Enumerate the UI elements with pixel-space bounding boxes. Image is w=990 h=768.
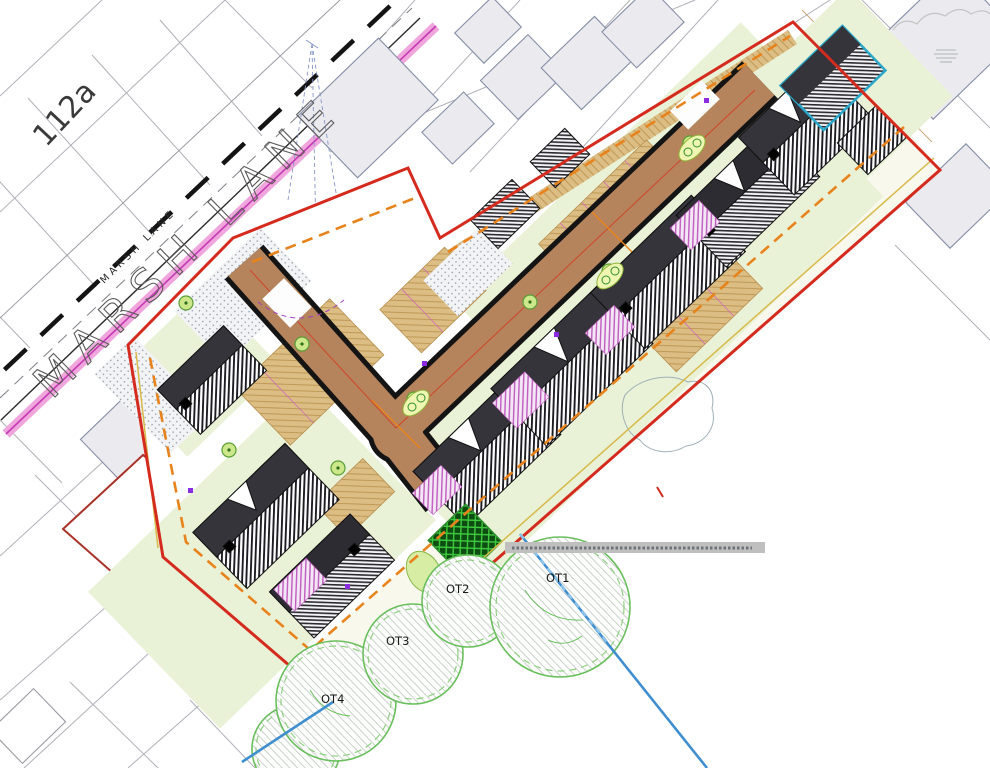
tree-label-OT1: OT1 (546, 571, 569, 585)
existing-building (0, 689, 66, 764)
annotation-bar (505, 542, 765, 553)
site-plan-page: 112a MARSH LANE MARSH LANE OT1 OT2 OT3 O… (0, 0, 990, 768)
tree-label-OT2: OT2 (446, 582, 469, 596)
tree-label-OT4: OT4 (321, 692, 344, 706)
house-112a-label: 112a (26, 74, 103, 153)
tree-OT1 (490, 537, 630, 677)
tree-label-OT3: OT3 (386, 634, 409, 648)
site-plan-drawing: 112a MARSH LANE MARSH LANE OT1 OT2 OT3 O… (0, 0, 990, 768)
boundary-tick-red (657, 487, 663, 497)
